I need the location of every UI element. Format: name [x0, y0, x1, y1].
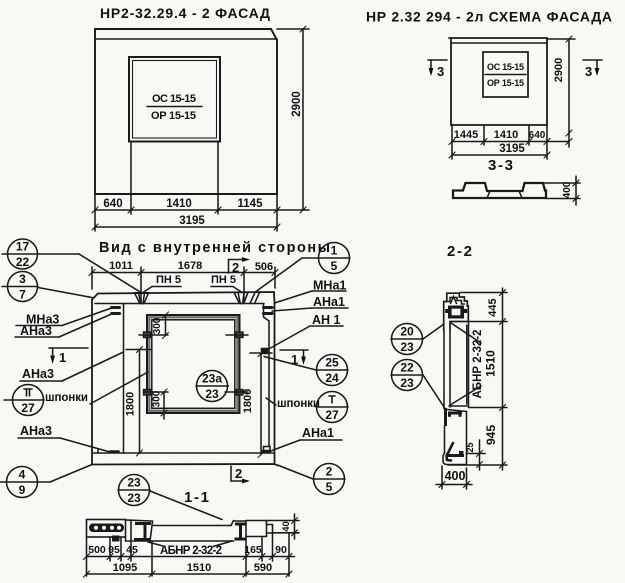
svg-text:1410: 1410: [166, 198, 192, 210]
svg-text:445: 445: [487, 298, 499, 316]
svg-text:25: 25: [465, 442, 475, 452]
svg-text:300: 300: [152, 390, 163, 407]
svg-text:3: 3: [585, 64, 592, 79]
svg-text:5: 5: [326, 480, 333, 494]
svg-text:23: 23: [400, 376, 414, 390]
svg-text:Вид с внутренней стороны: Вид с внутренней стороны: [99, 240, 330, 256]
svg-text:27: 27: [325, 408, 339, 422]
svg-text:1800: 1800: [242, 389, 254, 413]
svg-text:640: 640: [529, 130, 546, 141]
svg-text:АНа1: АНа1: [302, 426, 334, 440]
svg-text:20: 20: [400, 325, 414, 339]
svg-text:3 - 3: 3 - 3: [488, 157, 513, 174]
svg-text:2900: 2900: [553, 58, 565, 82]
svg-text:40: 40: [281, 521, 292, 532]
svg-text:25: 25: [325, 356, 339, 370]
svg-text:АНа3: АНа3: [20, 424, 52, 438]
svg-text:ПН 5: ПН 5: [156, 274, 181, 286]
svg-text:ПН 5: ПН 5: [211, 274, 236, 286]
svg-text:500: 500: [88, 544, 106, 556]
svg-text:НР 2.32 294 - 2л СХЕМА ФАСАДА: НР 2.32 294 - 2л СХЕМА ФАСАДА: [366, 9, 612, 25]
svg-text:22: 22: [400, 361, 414, 375]
svg-text:22: 22: [16, 255, 30, 269]
svg-text:945: 945: [484, 425, 498, 445]
svg-text:1-1: 1-1: [184, 489, 209, 506]
svg-text:23: 23: [127, 476, 141, 490]
svg-text:АНа1: АНа1: [313, 295, 345, 309]
svg-text:ОС 15-15: ОС 15-15: [152, 93, 196, 105]
svg-text:300: 300: [152, 317, 163, 334]
svg-text:2: 2: [326, 465, 333, 479]
svg-text:3: 3: [19, 272, 26, 286]
svg-text:7: 7: [19, 288, 26, 302]
svg-text:1445: 1445: [454, 129, 478, 141]
svg-text:1095: 1095: [113, 562, 137, 574]
svg-text:1678: 1678: [178, 260, 202, 272]
svg-text:шпонки: шпонки: [45, 392, 88, 404]
svg-text:23: 23: [205, 387, 219, 401]
svg-text:3195: 3195: [179, 215, 205, 227]
svg-text:27: 27: [21, 401, 35, 415]
svg-text:23а: 23а: [202, 372, 222, 386]
svg-text:95: 95: [108, 544, 120, 556]
svg-text:506: 506: [255, 261, 273, 273]
svg-text:24: 24: [325, 371, 339, 385]
svg-text:590: 590: [254, 562, 272, 574]
svg-text:1011: 1011: [109, 260, 133, 272]
svg-text:400: 400: [562, 181, 573, 198]
svg-text:1: 1: [331, 244, 338, 258]
svg-text:2-2: 2-2: [447, 243, 472, 260]
svg-text:НР2-32.29.4 - 2 ФАСАД: НР2-32.29.4 - 2 ФАСАД: [100, 5, 270, 21]
svg-text:23: 23: [127, 491, 141, 505]
svg-text:1800: 1800: [125, 392, 137, 416]
svg-text:2: 2: [235, 466, 242, 481]
svg-text:400: 400: [445, 469, 466, 483]
svg-text:АНа3: АНа3: [22, 367, 54, 381]
svg-text:5: 5: [331, 259, 338, 273]
svg-text:1: 1: [59, 350, 66, 365]
svg-text:165: 165: [244, 544, 262, 556]
svg-text:9: 9: [19, 483, 26, 497]
svg-text:45: 45: [126, 544, 138, 556]
svg-text:640: 640: [103, 198, 122, 210]
svg-text:ОС 15-15: ОС 15-15: [487, 62, 524, 72]
svg-text:90: 90: [275, 544, 287, 556]
svg-text:ОР 15-15: ОР 15-15: [151, 110, 196, 122]
svg-text:АН 1: АН 1: [312, 313, 341, 327]
svg-text:17: 17: [16, 240, 30, 254]
svg-text:1510: 1510: [187, 562, 211, 574]
svg-text:23: 23: [400, 340, 414, 354]
svg-text:ОР 15-15: ОР 15-15: [487, 78, 524, 88]
svg-text:3195: 3195: [499, 143, 525, 155]
svg-text:2: 2: [232, 260, 239, 275]
svg-text:шпонки: шпонки: [277, 398, 320, 410]
svg-text:4: 4: [19, 468, 26, 482]
svg-text:1510: 1510: [484, 350, 498, 377]
svg-text:2900: 2900: [291, 91, 303, 117]
svg-text:1410: 1410: [494, 129, 518, 141]
svg-text:3: 3: [437, 64, 444, 79]
svg-text:1145: 1145: [238, 198, 264, 210]
